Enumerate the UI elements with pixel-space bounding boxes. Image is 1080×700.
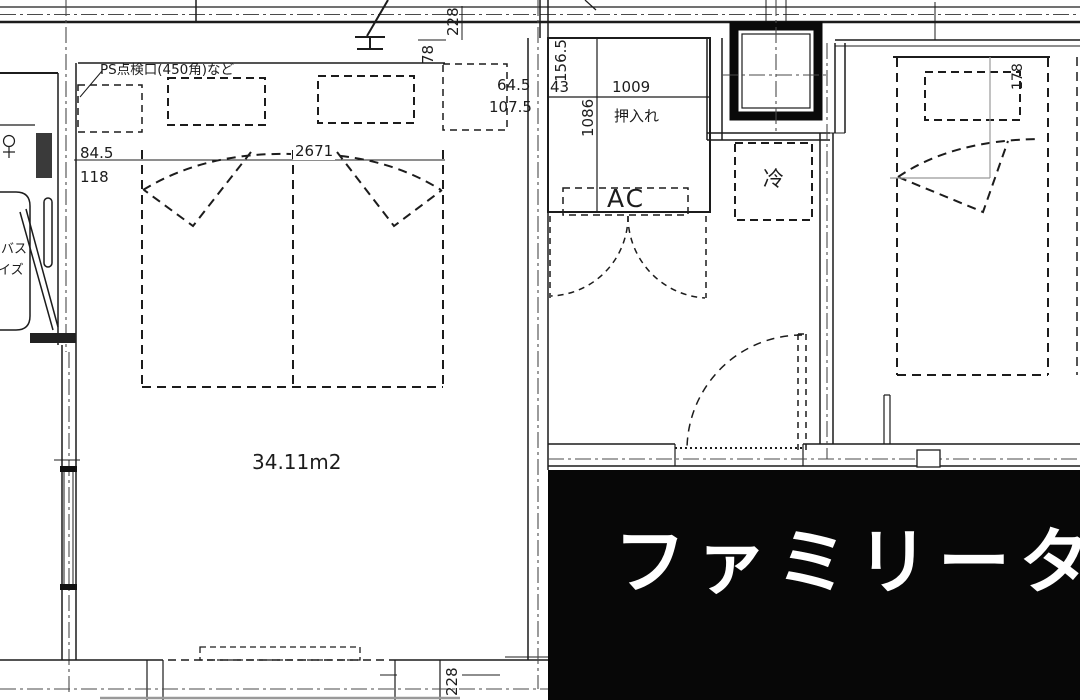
floor-outlet	[200, 647, 360, 660]
hall-bottom-wall	[548, 444, 1080, 467]
pillow	[318, 76, 414, 123]
futon-arc	[143, 154, 291, 190]
ac-label: AC	[607, 186, 645, 212]
right-room-wall	[820, 43, 890, 459]
top-wall	[0, 0, 1080, 40]
single-bed	[897, 58, 1048, 375]
ps-leader-line	[80, 71, 102, 97]
closet-label: 押入れ	[614, 109, 659, 125]
dim-top-78-label: 78	[421, 45, 437, 64]
grab-rail	[44, 198, 52, 267]
entry-door-swing	[687, 334, 806, 450]
dim-43-label: 43	[550, 80, 569, 96]
main-bedroom	[74, 6, 507, 660]
futon-fold	[144, 152, 251, 226]
bottom-wall	[0, 657, 548, 700]
ps-note-label: PS点検口(450角)など	[100, 63, 234, 77]
shower-icon	[3, 136, 15, 159]
dim-1009-label: 1009	[612, 80, 650, 96]
floor-plan-page: PS点検口(450角)など 84.5 118 2671 64.5 107.5 2…	[0, 0, 1080, 700]
title-banner: ファミリータ	[548, 470, 1080, 700]
pillow	[168, 78, 265, 125]
dim-118-label: 118	[80, 170, 109, 186]
door-sill	[30, 333, 76, 343]
wall-niche-dashed	[443, 64, 507, 130]
futon-arc	[898, 139, 1040, 177]
ps-access-panel	[78, 85, 142, 132]
bath-size-label-line2: イズ	[0, 264, 24, 278]
dim-84-5-label: 84.5	[80, 146, 113, 162]
dim-2671-label: 2671	[293, 144, 335, 160]
title-banner-text: ファミリータ	[614, 526, 1080, 598]
futon-fold	[337, 152, 442, 226]
right-bedroom	[835, 40, 1080, 375]
room-area-label: 34.11m2	[252, 452, 341, 473]
dim-bottom-228-label: 228	[445, 667, 461, 696]
pillow	[925, 72, 1020, 120]
shaft-box	[722, 0, 830, 133]
fridge-label: 冷	[735, 168, 812, 190]
bathroom	[0, 63, 76, 660]
dim-1086-label: 1086	[581, 99, 597, 137]
dim-64-5-label: 64.5	[497, 78, 530, 94]
bath-size-label-line1: バス	[1, 243, 27, 257]
bath-panel	[36, 133, 52, 178]
dim-178-label: 178	[1011, 63, 1026, 90]
dim-top-228-label: 228	[446, 7, 462, 36]
dim-156-5-label: 156.5	[554, 39, 570, 82]
double-beds	[142, 76, 443, 387]
dim-107-5-label: 107.5	[489, 100, 532, 116]
bathtub	[0, 192, 30, 330]
closet-double-door	[550, 216, 706, 298]
